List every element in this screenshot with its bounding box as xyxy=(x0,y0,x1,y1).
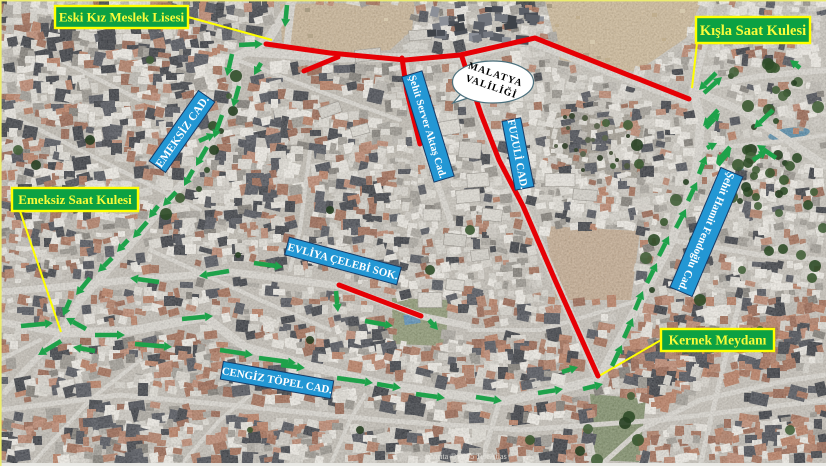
svg-text:Kernek Meydanı: Kernek Meydanı xyxy=(669,333,767,348)
svg-text:Eski Kız Meslek Lisesi: Eski Kız Meslek Lisesi xyxy=(59,10,185,25)
svg-text:Emeksiz Saat Kulesi: Emeksiz Saat Kulesi xyxy=(18,192,132,207)
svg-text:harita © 2005 TeleAtlas: harita © 2005 TeleAtlas xyxy=(430,452,507,461)
svg-text:Kışla Saat Kulesi: Kışla Saat Kulesi xyxy=(700,23,806,39)
